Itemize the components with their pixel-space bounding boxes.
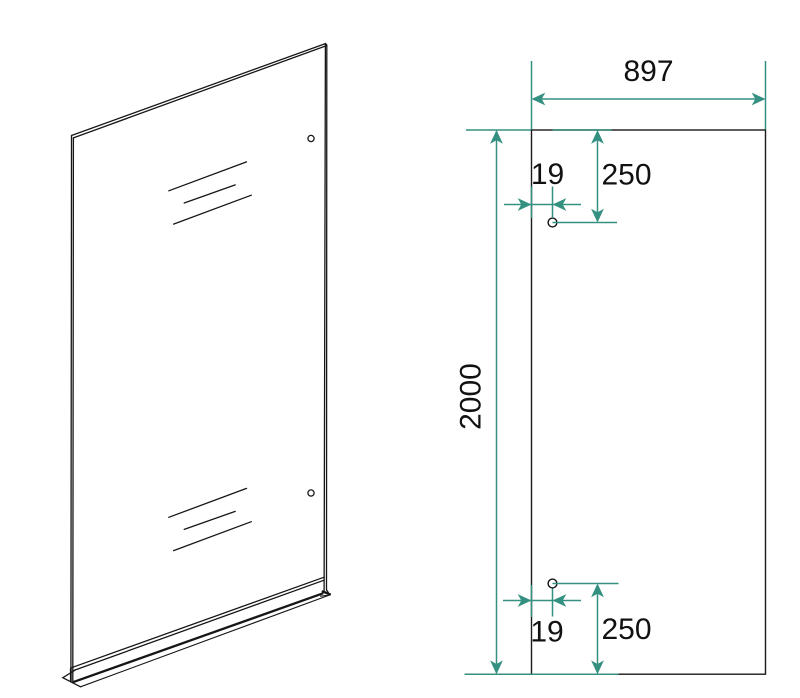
svg-text:250: 250 <box>602 159 652 192</box>
svg-text:19: 19 <box>531 158 564 191</box>
svg-text:897: 897 <box>623 55 673 88</box>
svg-text:2000: 2000 <box>455 363 488 430</box>
svg-text:250: 250 <box>602 613 652 646</box>
svg-text:19: 19 <box>530 616 563 649</box>
